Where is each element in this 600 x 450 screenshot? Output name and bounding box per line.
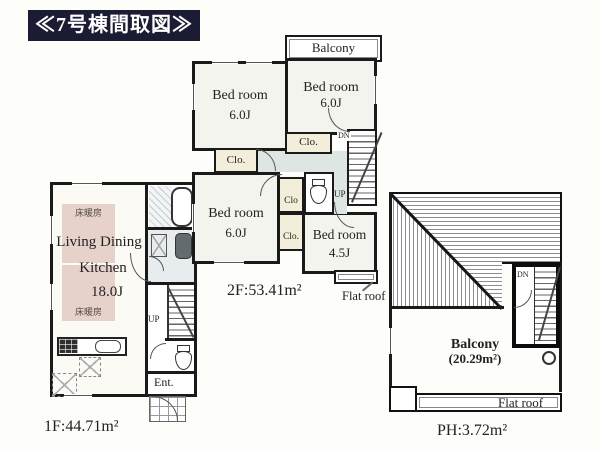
ph-vent-circle xyxy=(542,351,556,365)
f2-balcony-label: Balcony xyxy=(285,41,382,55)
window-gap xyxy=(72,182,102,185)
f2-bedroom-top-left xyxy=(192,61,288,151)
f1-up-label: UP xyxy=(148,315,160,325)
stove-icon xyxy=(59,339,78,353)
f2-closet-small-lower-label: Clo. xyxy=(278,232,304,242)
washing-machine-icon xyxy=(151,234,167,257)
f2-bedroom-tr-name: Bed room xyxy=(285,80,377,95)
f2-bedroom-bl-name: Bed room xyxy=(192,206,280,221)
ph-area-label: PH:3.72m² xyxy=(437,422,507,440)
f2-bedroom-tl-name: Bed room xyxy=(192,88,288,103)
window-gap xyxy=(212,61,238,64)
f2-staircase xyxy=(347,129,377,206)
window-gap xyxy=(214,261,244,264)
f2-bedroom-br-size: 4.5J xyxy=(302,246,377,260)
wall-toilet-bottom xyxy=(148,371,194,374)
ph-balcony-area: (20.29m²) xyxy=(420,352,530,366)
f2-toilet-icon xyxy=(310,179,327,204)
washbasin-icon xyxy=(175,233,192,259)
f1-area-label: 1F:44.71m² xyxy=(44,418,119,436)
f1-floor-heating-label-bottom: 床暖房 xyxy=(62,308,115,318)
f2-closet-small-upper-label: Clo xyxy=(278,196,304,206)
f1-floor-heating-label-top: 床暖房 xyxy=(62,209,115,219)
window-gap xyxy=(374,76,377,104)
wall-stairs-bottom xyxy=(165,338,196,341)
window-gap xyxy=(50,284,53,310)
f1-room-name-line1: Living Dining xyxy=(50,234,148,251)
f2-bedroom-br-name: Bed room xyxy=(302,228,377,243)
f2-area-label: 2F:53.41m² xyxy=(227,282,302,300)
f1-room-size: 18.0J xyxy=(58,284,156,301)
ph-flat-roof-label: Flat roof xyxy=(498,396,543,410)
window-gap xyxy=(192,204,195,232)
ph-left-wall xyxy=(389,192,392,392)
f2-dn-label: DN xyxy=(337,132,351,141)
f2-closet-mid-left-label: Clo. xyxy=(214,154,258,166)
bathroom-floor xyxy=(149,186,171,227)
f2-bedroom-bl-size: 6.0J xyxy=(192,226,280,240)
window-gap xyxy=(192,84,195,110)
bathtub-icon xyxy=(171,187,193,227)
ph-staircase xyxy=(534,267,556,344)
f2-flat-roof-label: Flat roof xyxy=(342,290,385,304)
window-gap xyxy=(50,216,53,244)
f2-bedroom-tl-size: 6.0J xyxy=(192,108,288,122)
ph-roof-bottom-wall xyxy=(389,306,504,309)
appliance-space-dashed-box xyxy=(79,357,101,377)
ph-flat-roof-notch xyxy=(389,386,417,412)
window-gap xyxy=(246,61,272,64)
f1-toilet-icon xyxy=(175,345,192,370)
window-gap xyxy=(389,328,392,354)
ph-dn-label: DN xyxy=(517,271,529,280)
page-title: ≪7号棟間取図≫ xyxy=(28,10,200,41)
kitchen-sink-icon xyxy=(95,340,121,353)
floorplan-page: ≪7号棟間取図≫ 床暖房 床暖房 Living Dining Kitchen 1… xyxy=(0,0,600,450)
f1-entrance-label: Ent. xyxy=(154,376,174,389)
f2-closet-top-label: Clo. xyxy=(285,136,332,148)
f2-up-label: UP xyxy=(334,190,346,200)
window-gap xyxy=(64,394,92,397)
f2-bedroom-bottom-right xyxy=(302,212,377,274)
